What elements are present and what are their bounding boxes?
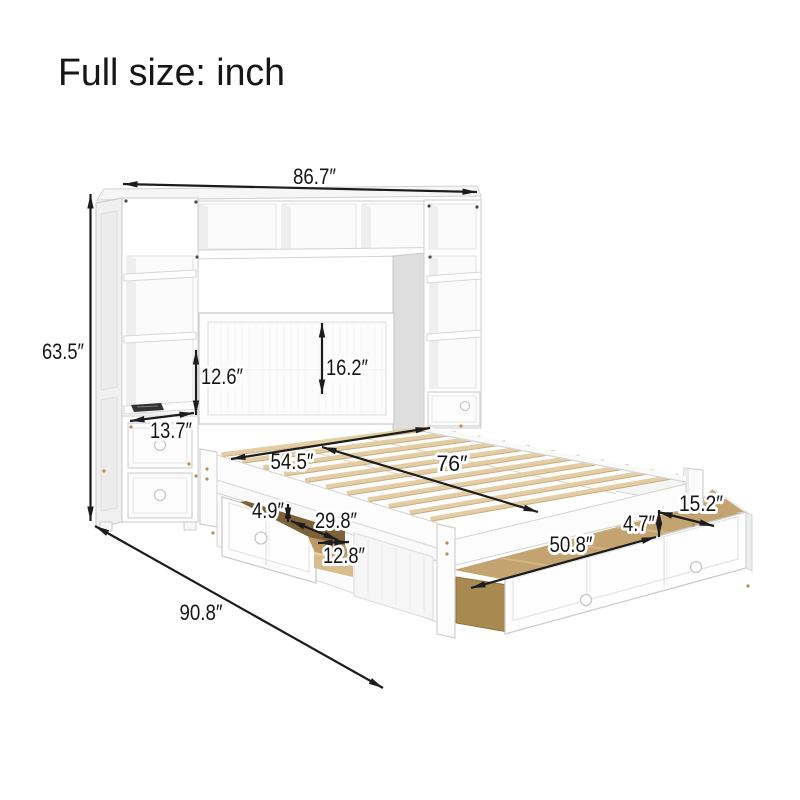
svg-text:12.8″: 12.8″ [323, 543, 365, 568]
svg-text:13.7″: 13.7″ [150, 418, 192, 443]
svg-text:76″: 76″ [437, 451, 468, 476]
svg-text:50.8″: 50.8″ [550, 532, 593, 557]
svg-text:86.7″: 86.7″ [293, 164, 336, 189]
svg-text:12.6″: 12.6″ [201, 364, 243, 389]
svg-text:15.2″: 15.2″ [679, 491, 723, 516]
svg-text:63.5″: 63.5″ [42, 339, 84, 364]
svg-text:90.8″: 90.8″ [180, 600, 223, 625]
svg-text:Full size: inch: Full size: inch [58, 52, 285, 94]
svg-text:4.9″: 4.9″ [252, 498, 284, 523]
svg-text:4.7″: 4.7″ [623, 511, 655, 536]
svg-text:16.2″: 16.2″ [326, 355, 368, 380]
svg-text:29.8″: 29.8″ [315, 508, 357, 533]
